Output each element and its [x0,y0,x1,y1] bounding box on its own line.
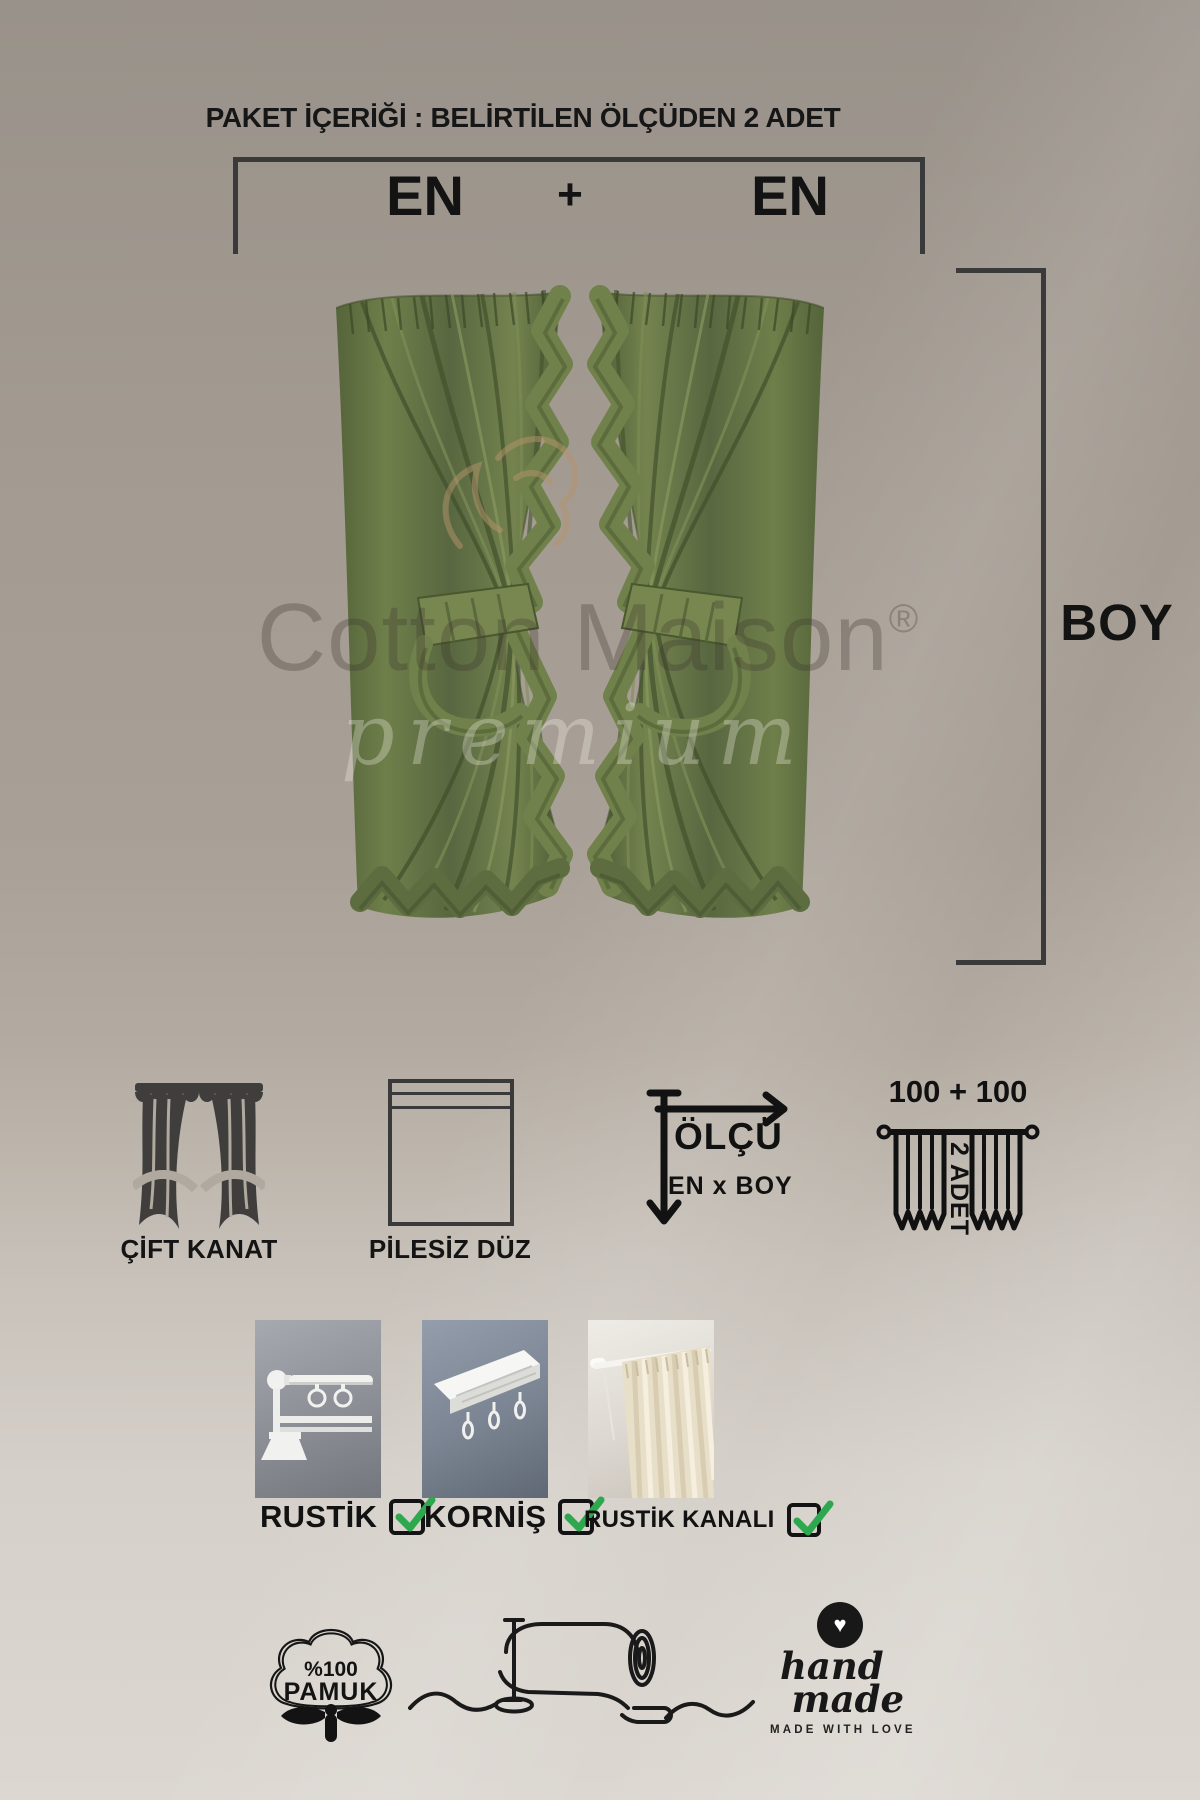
mounting-label: KORNİŞ [424,1499,546,1535]
mounting-option-rustik: RUSTİK [260,1499,425,1535]
feature-sublabel-measure: EN x BOY [668,1172,793,1201]
heart-badge-icon: ♥ [817,1602,863,1648]
quantity-text: 2 ADET [944,1142,973,1236]
handmade-word2: made [770,1683,910,1716]
rustik-rod-illustration [255,1320,381,1498]
product-infographic: PAKET İÇERİĞİ : BELİRTİLEN ÖLÇÜDEN 2 ADE… [0,0,1200,1800]
checkbox-checked [787,1503,821,1537]
checkbox-checked [389,1499,425,1535]
feature-label-flat: PİLESİZ DÜZ [369,1234,531,1265]
flat-panel-icon [388,1079,514,1226]
height-label: BOY [1060,593,1174,652]
page-title: PAKET İÇERİĞİ : BELİRTİLEN ÖLÇÜDEN 2 ADE… [206,102,841,134]
handmade-tagline: MADE WITH LOVE [770,1724,910,1736]
mounting-label: RUSTİK [260,1499,377,1535]
brand-watermark: Cotton Maison® [257,583,919,693]
rustik-rod-photo [255,1320,381,1498]
mounting-label: RUSTİK KANALI [584,1506,775,1534]
kornis-track-photo [422,1320,548,1498]
rustik-kanali-photo [588,1320,714,1498]
heart-icon: ♥ [833,1614,846,1636]
brand-watermark-text: Cotton Maison [257,584,889,691]
premium-watermark: premium [341,686,809,784]
double-curtain-icon [133,1083,265,1235]
mounting-option-rustik-kanali: RUSTİK KANALI [584,1503,821,1537]
feature-label-double-panel: ÇİFT KANAT [120,1234,277,1265]
cotton-badge-icon: %100 PAMUK [258,1618,404,1754]
panel-size-text: 100 + 100 [889,1074,1028,1110]
cotton-word-text: PAMUK [284,1678,379,1706]
feature-label-measure: ÖLÇÜ [674,1116,783,1158]
rustik-kanali-illustration [588,1320,714,1498]
handmade-stamp: ♥ hand made MADE WITH LOVE [770,1602,910,1736]
checkmark-icon [789,1497,835,1543]
plus-sign: + [557,170,583,220]
width-label-left: EN [386,163,464,228]
registered-mark: ® [889,597,919,641]
mounting-option-kornis: KORNİŞ [424,1499,594,1535]
sewing-machine-icon [408,1610,756,1746]
measure-arrows-icon [644,1079,804,1239]
kornis-track-illustration [422,1320,548,1498]
watermark-ornament-icon [420,418,630,568]
width-label-right: EN [751,163,829,228]
height-bracket [956,268,1046,965]
